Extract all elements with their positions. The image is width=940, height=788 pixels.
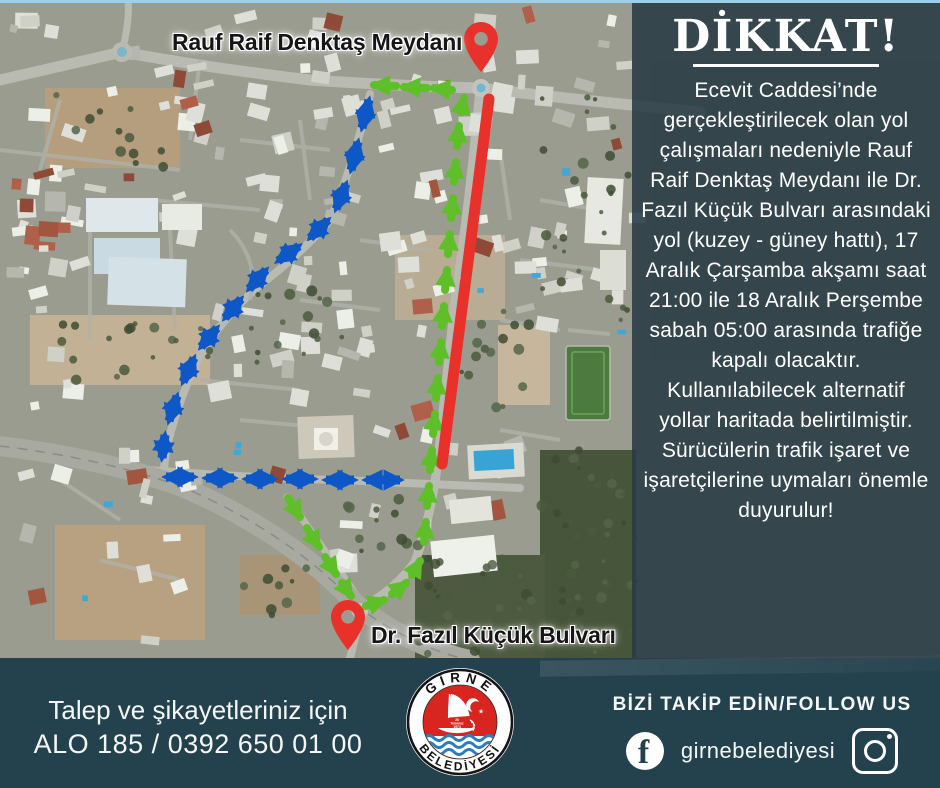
top-accent-border — [0, 0, 940, 3]
instagram-lens — [864, 740, 886, 762]
follow-us-label: BİZİ TAKİP EDİN/FOLLOW US — [592, 694, 932, 716]
notice-panel: DİKKAT! Ecevit Caddesi’nde gerçekleştiri… — [632, 0, 940, 658]
traffic-announcement-poster: Rauf Raif Denktaş Meydanı Dr. Fazıl Küçü… — [0, 0, 940, 788]
notice-body: Ecevit Caddesi’nde gerçekleştirilecek ol… — [640, 76, 932, 526]
contact-phone: ALO 185 / 0392 650 01 00 — [16, 727, 380, 762]
brush-streak — [540, 655, 940, 677]
instagram-dot — [887, 734, 892, 739]
girne-belediyesi-logo: 20 Temmuz 1974 ★ GİRNE BELEDİYESİ — [404, 666, 516, 778]
contact-intro: Talep ve şikayetleriniz için — [16, 694, 380, 727]
social-handle[interactable]: girnebelediyesi — [681, 738, 835, 764]
instagram-icon[interactable] — [852, 728, 898, 774]
notice-title: DİKKAT! — [632, 12, 940, 61]
svg-text:★: ★ — [478, 708, 484, 716]
contact-block: Talep ve şikayetleriniz için ALO 185 / 0… — [16, 694, 380, 762]
social-block: BİZİ TAKİP EDİN/FOLLOW US f girnebelediy… — [592, 694, 932, 774]
map-label-dr-fazil-kucuk: Dr. Fazıl Küçük Bulvarı — [371, 622, 616, 649]
facebook-icon[interactable]: f — [626, 732, 664, 770]
svg-text:1974: 1974 — [453, 725, 461, 729]
title-underline — [693, 64, 879, 67]
map-label-rauf-raif-denktas: Rauf Raif Denktaş Meydanı — [172, 29, 462, 56]
